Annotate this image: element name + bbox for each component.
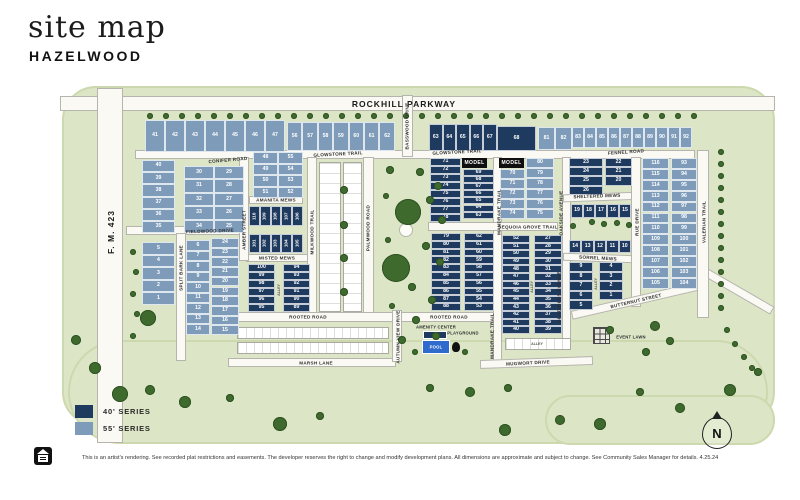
lot: 84 (431, 272, 461, 280)
lot: 12 (594, 240, 606, 253)
lot: 16 (607, 204, 619, 218)
legend-label-40-series: 40' SERIES (103, 407, 151, 416)
lot: 110 (249, 206, 260, 226)
lot: 71 (500, 179, 525, 189)
tree (226, 394, 234, 402)
lot: 47 (502, 273, 530, 281)
lot: 80 (431, 241, 461, 249)
lot: 95 (248, 304, 275, 312)
lot: 59 (464, 256, 494, 264)
lot: 11 (606, 240, 618, 253)
tree (555, 415, 565, 425)
tree (718, 149, 724, 155)
tree (434, 182, 442, 190)
model-label: MODEL (462, 158, 487, 168)
lot: 43 (502, 303, 530, 311)
legend-item-40-series: 40' SERIES (75, 405, 151, 418)
lot: 72 (430, 166, 461, 174)
north-label: N (712, 426, 721, 441)
tree (642, 348, 650, 356)
street-label: MISTED MEWS (259, 256, 295, 261)
lot: 107 (281, 206, 292, 226)
street-label: SEQUOIA GROVE TRAIL (498, 225, 557, 230)
lot: 50 (502, 250, 530, 258)
lot: 52 (502, 235, 530, 243)
lot: 8 (186, 261, 210, 272)
lot: 58 (318, 122, 333, 151)
street-label: SPLIT BARK LANE (179, 245, 184, 291)
lot: 100 (671, 234, 697, 245)
tree (416, 168, 424, 176)
lot: 107 (642, 256, 669, 267)
tree (718, 161, 724, 167)
tree (428, 296, 436, 304)
lot: 7 (569, 281, 593, 291)
lot: 81 (538, 127, 555, 150)
lot: 17 (211, 306, 239, 316)
lot: 104 (281, 234, 292, 253)
tree (718, 257, 724, 263)
lot: 79 (526, 168, 554, 178)
lot: 74 (500, 209, 525, 219)
lot: 101 (249, 234, 260, 253)
lot: 86 (431, 288, 461, 296)
lot: 27 (534, 235, 562, 243)
lot: 15 (619, 204, 631, 218)
lot: 89 (644, 127, 656, 148)
lot: 69 (463, 169, 494, 176)
lot: 44 (502, 296, 530, 304)
lot: 26 (214, 206, 244, 219)
tree (718, 269, 724, 275)
lot: 41 (145, 120, 165, 152)
lot: 101 (671, 245, 697, 256)
lot: 33 (184, 206, 214, 219)
lot: 100 (248, 264, 275, 272)
lot: 55 (464, 288, 494, 296)
lot: 67 (463, 183, 494, 190)
tree (504, 384, 512, 392)
tree (130, 249, 136, 255)
street-label: PALMWOOD ROAD (366, 205, 371, 251)
tree (570, 223, 576, 229)
lot: 86 (608, 127, 620, 148)
lot: 113 (642, 191, 669, 202)
lot: 62 (464, 233, 494, 241)
legend-swatch-40-series (75, 405, 93, 418)
tree (340, 288, 348, 296)
tree (718, 293, 724, 299)
amenity-label: POOL (430, 345, 443, 350)
lot: 83 (431, 264, 461, 272)
lot: 10 (619, 240, 631, 253)
tree (465, 387, 475, 397)
lot: 10 (186, 282, 210, 293)
lot: 3 (142, 267, 175, 280)
lot: 54 (464, 295, 494, 303)
tree (383, 193, 389, 199)
map-greenspace (545, 395, 775, 445)
street-label: AMBER STREET (242, 210, 247, 250)
tree (382, 254, 410, 282)
lot: 8 (569, 272, 593, 282)
lot: 22 (211, 257, 239, 267)
tree (589, 219, 595, 225)
lot: 96 (671, 191, 697, 202)
lot: 45 (502, 288, 530, 296)
lot: 39 (534, 326, 562, 334)
lot: 91 (283, 288, 310, 296)
tree (724, 384, 736, 396)
lot: 90 (656, 127, 668, 148)
lot: 48 (253, 152, 278, 164)
lot: 85 (596, 127, 608, 148)
lot: 12 (186, 303, 210, 314)
lot: 91 (668, 127, 680, 148)
tree (718, 233, 724, 239)
lot: 18 (583, 204, 595, 218)
tree (340, 186, 348, 194)
lot: 32 (184, 193, 214, 206)
lot: 110 (642, 223, 669, 234)
tree (718, 197, 724, 203)
lot: 20 (211, 277, 239, 287)
tree (601, 221, 607, 227)
legend-item-55-series: 55' SERIES (75, 422, 151, 435)
lot: 24 (569, 167, 603, 176)
tree (675, 403, 685, 413)
lot: 68 (463, 176, 494, 183)
tree (718, 209, 724, 215)
lot: 67 (483, 124, 497, 151)
tree (666, 337, 674, 345)
tree (130, 333, 136, 339)
tree (422, 242, 430, 250)
lot: 51 (502, 243, 530, 251)
lot: 58 (464, 264, 494, 272)
lot: 77 (430, 206, 461, 214)
lot: 44 (205, 120, 225, 152)
lot: 1 (599, 291, 623, 301)
lot: 116 (642, 158, 669, 169)
tree (718, 281, 724, 287)
lot: 21 (605, 167, 632, 176)
tree (650, 321, 660, 331)
lot: 92 (680, 127, 692, 148)
alley-label: ALLEY (594, 278, 598, 290)
tree (606, 326, 614, 334)
lot: 30 (534, 258, 562, 266)
tree (112, 386, 128, 402)
tree (732, 341, 738, 347)
lot: 31 (184, 179, 214, 192)
lot: 90 (283, 296, 310, 304)
lot: 46 (502, 281, 530, 289)
lot: 41 (502, 319, 530, 327)
lot: 48 (502, 265, 530, 273)
tree (614, 220, 620, 226)
lot: 83 (572, 127, 584, 148)
lot: 56 (464, 280, 494, 288)
street-label: AMANITA MEWS (256, 198, 296, 203)
street-label: F. M. 423 (106, 210, 116, 254)
lot: 99 (671, 223, 697, 234)
street-label: MARSH LANE (299, 361, 333, 366)
tree (754, 368, 762, 376)
lot: 60 (464, 249, 494, 257)
lot: 9 (569, 262, 593, 272)
lot: 50 (253, 175, 278, 187)
tree (395, 199, 421, 225)
lot: 11 (186, 293, 210, 304)
lot: 72 (500, 189, 525, 199)
tree (412, 316, 420, 324)
tree (89, 362, 101, 374)
lot: 102 (260, 234, 271, 253)
lot: 53 (464, 303, 494, 311)
tree (462, 349, 468, 355)
street-label: ROOTED ROAD (430, 315, 468, 320)
tree (389, 303, 395, 309)
street-label: BASSWOOD DRIVE (405, 102, 410, 149)
lot: 27 (214, 193, 244, 206)
lot: 40 (142, 160, 175, 172)
lot: 4 (599, 262, 623, 272)
lot: 105 (292, 234, 303, 253)
lot: 25 (569, 176, 603, 185)
amenity-label: EVENT LAWN (616, 335, 645, 340)
tree (718, 305, 724, 311)
street-label: MANDRAKE TRAIL (490, 313, 495, 359)
lot: 63 (429, 124, 443, 151)
lot: 42 (502, 311, 530, 319)
equal-housing-icon (34, 447, 52, 465)
future-lot-strip (237, 327, 389, 339)
tree (140, 310, 156, 326)
lot: 97 (671, 202, 697, 213)
tree (436, 258, 444, 266)
lot: 97 (248, 288, 275, 296)
lot: 53 (278, 175, 303, 187)
lot: 21 (211, 267, 239, 277)
equal-housing-roof (37, 449, 49, 454)
lot: 76 (430, 198, 461, 206)
street-label: VALERIAN TRAIL (702, 201, 707, 243)
legend: 40' SERIES 55' SERIES (75, 405, 151, 439)
lot: 43 (185, 120, 205, 152)
lot: 19 (211, 287, 239, 297)
lot: 57 (302, 122, 317, 151)
lot: 103 (271, 234, 282, 253)
lot: 5 (142, 242, 175, 255)
lot: 73 (500, 199, 525, 209)
lot: 6 (186, 240, 210, 251)
lot: 93 (283, 272, 310, 280)
lot: 99 (248, 272, 275, 280)
lot: 112 (642, 202, 669, 213)
lot: 98 (671, 213, 697, 224)
tree (386, 166, 394, 174)
lot: 60 (349, 122, 364, 151)
lot: 17 (595, 204, 607, 218)
lot: 95 (671, 180, 697, 191)
lot: 64 (443, 124, 457, 151)
lot: 73 (430, 174, 461, 182)
lot: 104 (671, 278, 697, 289)
alley-label: ALLEY (277, 284, 281, 296)
lot: 52 (278, 187, 303, 199)
tree (273, 417, 287, 431)
lot: 92 (283, 280, 310, 288)
lot: 81 (431, 249, 461, 257)
street-label: AUTUMN VIEW DRIVE (396, 310, 401, 363)
lot: 57 (464, 272, 494, 280)
lot: 54 (278, 164, 303, 176)
tree (385, 237, 391, 243)
tree (145, 385, 155, 395)
lot: 61 (464, 241, 494, 249)
tree (626, 222, 632, 228)
lot: 84 (584, 127, 596, 148)
model-label: MODEL (499, 158, 524, 168)
lot: 102 (671, 256, 697, 267)
lot: 42 (165, 120, 185, 152)
lot: 16 (211, 316, 239, 326)
lot: 5 (569, 300, 593, 310)
site-map-page: site map HAZELWOOD 414243444546475657585… (0, 0, 800, 500)
lot: 114 (642, 180, 669, 191)
tree (71, 335, 81, 345)
lot: 14 (569, 240, 581, 253)
lot: 85 (431, 280, 461, 288)
lot: 59 (333, 122, 348, 151)
lot: 40 (502, 326, 530, 334)
tree (636, 388, 644, 396)
lot: 108 (642, 245, 669, 256)
lot: 94 (671, 169, 697, 180)
legend-label-55-series: 55' SERIES (103, 424, 151, 433)
tree (718, 245, 724, 251)
lot: 94 (283, 264, 310, 272)
lot: 115 (642, 169, 669, 180)
lot: 87 (620, 127, 632, 148)
lot: 24 (211, 238, 239, 248)
lot: 35 (142, 221, 175, 233)
lot: 38 (142, 184, 175, 196)
lot: 88 (431, 303, 461, 311)
lot: 13 (581, 240, 593, 253)
lot: 65 (463, 197, 494, 204)
tree (179, 396, 191, 408)
street-label: OAKSIDE AVENUE (559, 190, 564, 235)
tree (130, 291, 136, 297)
lot: 47 (265, 120, 285, 152)
lot: 2 (142, 280, 175, 293)
lot: 46 (245, 120, 265, 152)
lot: 6 (569, 291, 593, 301)
tree (408, 283, 416, 291)
lot: 62 (379, 122, 394, 151)
lot: 71 (430, 158, 461, 166)
tree (316, 412, 324, 420)
lot: 82 (555, 127, 572, 150)
lot: 98 (248, 280, 275, 288)
lot: 9 (186, 272, 210, 283)
tree (718, 173, 724, 179)
street-label: ROOTED ROAD (289, 315, 327, 320)
alley-label: ALLEY (531, 342, 543, 346)
lot: 7 (186, 251, 210, 262)
street-label: MILKWOOD TRAIL (310, 209, 315, 254)
lot: 28 (214, 179, 244, 192)
lot: 23 (211, 248, 239, 258)
lot: 108 (271, 206, 282, 226)
lot: 77 (526, 189, 554, 199)
lot: 63 (463, 212, 494, 219)
street-label: GLADIOLUS AVENUE (557, 271, 562, 323)
lot: 64 (463, 205, 494, 212)
tree (438, 216, 446, 224)
tree (724, 327, 730, 333)
future-lot-strip (319, 162, 341, 312)
pond (399, 223, 413, 237)
lot: 23 (569, 158, 603, 167)
playground-icon (452, 342, 460, 352)
lot: 28 (534, 243, 562, 251)
lot: 51 (253, 187, 278, 199)
lot: 66 (463, 190, 494, 197)
lot: 37 (142, 197, 175, 209)
lot: 29 (214, 166, 244, 179)
lot: 65 (456, 124, 470, 151)
lot: 3 (599, 272, 623, 282)
tree (340, 221, 348, 229)
lot: 15 (211, 325, 239, 335)
lot: 13 (186, 314, 210, 325)
tree (133, 269, 139, 275)
tree (432, 332, 440, 340)
lot: 4 (142, 255, 175, 268)
tree (412, 349, 418, 355)
lot: 109 (642, 234, 669, 245)
tree (340, 254, 348, 262)
tree (499, 424, 511, 436)
disclaimer-text: This is an artist's rendering. See recor… (82, 455, 718, 461)
tree (594, 418, 606, 430)
lot: 76 (526, 199, 554, 209)
lot: 111 (642, 213, 669, 224)
equal-housing-equals (40, 457, 46, 458)
tree (426, 196, 434, 204)
tree (741, 354, 747, 360)
lot: 106 (292, 206, 303, 226)
lot: 1 (142, 292, 175, 305)
amenity-label: AMENITY CENTER (416, 325, 456, 330)
lot: 18 (211, 296, 239, 306)
lot: 56 (287, 122, 302, 151)
lot: 106 (642, 267, 669, 278)
lot: 96 (248, 296, 275, 304)
lot: 22 (605, 158, 632, 167)
lot: 70 (500, 169, 525, 179)
lot: 30 (184, 166, 214, 179)
lot: 49 (253, 164, 278, 176)
tree (718, 185, 724, 191)
lot: 29 (534, 250, 562, 258)
lot: 75 (430, 190, 461, 198)
tree (718, 221, 724, 227)
lot: 78 (526, 178, 554, 188)
